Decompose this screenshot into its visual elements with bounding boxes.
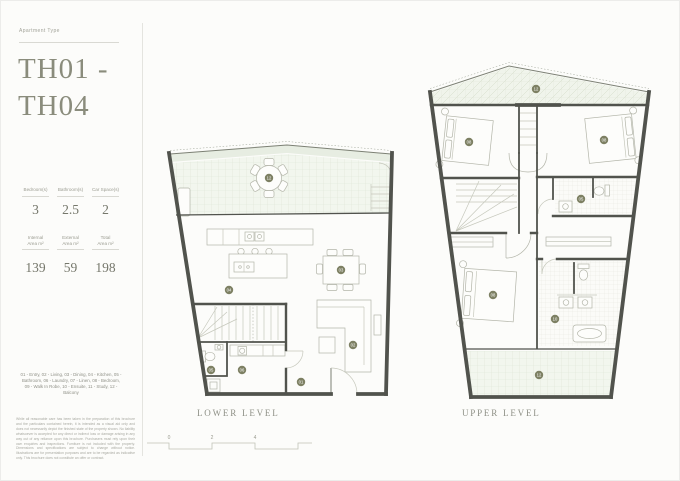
svg-text:03: 03: [339, 268, 344, 273]
room-label-entry: 01: [297, 378, 305, 386]
living-sofa: [317, 300, 381, 372]
upper-roof-terrace: [430, 63, 649, 105]
side-table: [374, 315, 381, 335]
room-label-upper-balcony: 12: [535, 371, 543, 379]
master-robe: [451, 237, 493, 247]
ottoman: [319, 337, 335, 353]
room-label-laundry: 06: [238, 366, 246, 374]
kitchen-joinery: [207, 229, 313, 245]
scale-tick-0: 0: [168, 435, 171, 441]
upper-level-title: UPPER LEVEL: [462, 408, 541, 418]
room-label-bedroom-1: 08: [465, 138, 473, 146]
room-label-bathroom: 05: [207, 366, 215, 374]
powder-room: [201, 345, 223, 363]
room-label-master-bedroom: 08: [489, 291, 497, 299]
svg-text:10: 10: [553, 317, 558, 322]
svg-text:01: 01: [299, 380, 304, 385]
scale-bar: 0 2 4: [147, 435, 312, 449]
washer-nook: [207, 379, 220, 392]
floor-plans-canvas: 12 04 03 02 05 06 01 LOWER LEVEL: [1, 1, 680, 481]
svg-text:08: 08: [602, 138, 607, 143]
room-label-roof-terrace: 12: [532, 85, 540, 93]
room-label-balcony: 12: [265, 174, 273, 182]
bedroom-1-bed: [436, 108, 494, 173]
lower-level-title: LOWER LEVEL: [197, 408, 280, 418]
kitchen-island: [229, 248, 287, 278]
svg-text:05: 05: [579, 197, 584, 202]
scale-tick-2: 2: [211, 435, 214, 441]
laundry: [230, 345, 285, 356]
master-door-swing: [506, 233, 531, 258]
svg-text:05: 05: [209, 368, 214, 373]
upper-stairs: [442, 180, 517, 231]
svg-text:08: 08: [491, 293, 496, 298]
upper-level-plan: 12 08 08 05 08 10 12 UPPER LEVEL: [430, 63, 649, 419]
master-bed: [455, 260, 517, 330]
walk-in-robe: [546, 237, 611, 246]
room-label-living: 02: [349, 341, 357, 349]
svg-text:12: 12: [537, 373, 542, 378]
svg-text:02: 02: [351, 343, 356, 348]
svg-text:08: 08: [467, 140, 472, 145]
bathtub: [573, 325, 606, 342]
room-label-ensuite: 10: [551, 315, 559, 323]
door-swing: [538, 199, 553, 214]
svg-text:06: 06: [240, 368, 245, 373]
stair-core: [509, 113, 547, 172]
room-label-dining: 03: [337, 266, 345, 274]
svg-text:04: 04: [227, 288, 232, 293]
svg-text:12: 12: [267, 176, 272, 181]
room-label-kitchen: 04: [225, 286, 233, 294]
ensuite: [539, 259, 626, 346]
svg-text:12: 12: [534, 87, 539, 92]
scale-tick-4: 4: [254, 435, 257, 441]
room-label-bedroom-2: 08: [600, 136, 608, 144]
room-label-upper-bathroom: 05: [577, 195, 585, 203]
brochure-page: Apartment Type TH01 - TH04 Bedroom(s) 3 …: [0, 0, 680, 481]
lower-level-plan: 12 04 03 02 05 06 01 LOWER LEVEL: [169, 142, 392, 419]
lower-stairs: [198, 304, 278, 342]
bedroom-2-bed: [584, 107, 642, 169]
